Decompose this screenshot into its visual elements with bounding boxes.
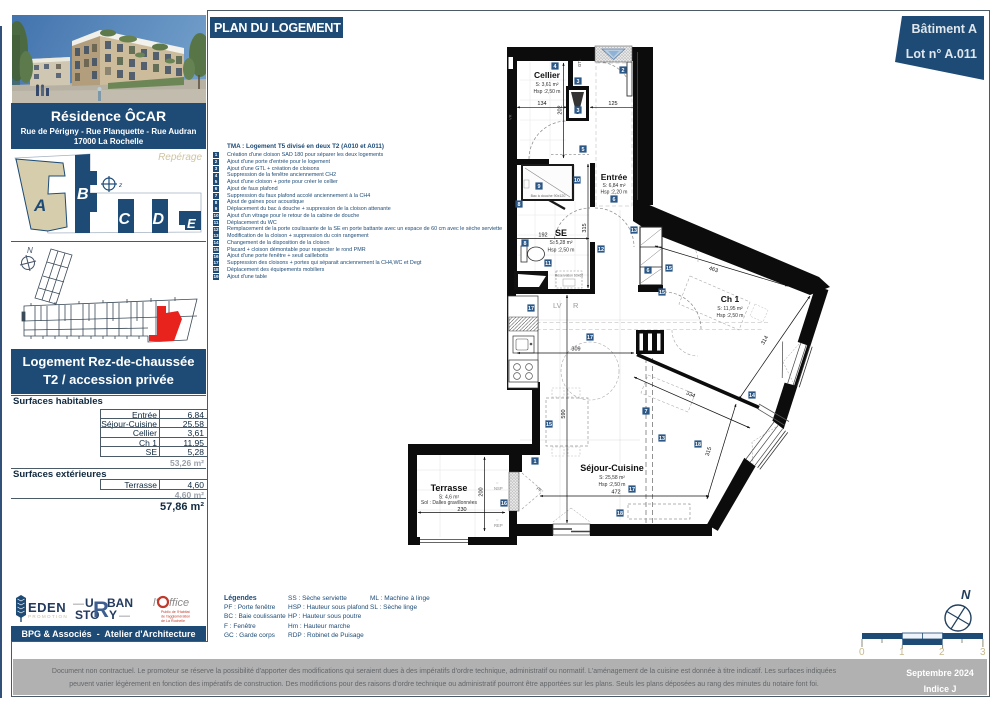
- svg-text:200: 200: [479, 487, 485, 496]
- svg-text:Séjour-Cuisine: Séjour-Cuisine: [580, 463, 644, 473]
- svg-text:14: 14: [749, 393, 755, 399]
- svg-text:230: 230: [457, 507, 466, 513]
- svg-text:Cellier: Cellier: [534, 70, 561, 80]
- svg-text:REP: REP: [494, 523, 503, 528]
- svg-text:9: 9: [538, 184, 541, 190]
- svg-text:Bac à douche 90x120: Bac à douche 90x120: [531, 194, 566, 198]
- svg-text:13: 13: [659, 436, 665, 442]
- svg-text:R: R: [573, 301, 579, 310]
- svg-text:134: 134: [537, 101, 546, 107]
- svg-text:5: 5: [582, 147, 585, 153]
- svg-text:472: 472: [611, 490, 620, 496]
- svg-text:15: 15: [659, 290, 665, 296]
- svg-text:315: 315: [582, 223, 588, 232]
- svg-text:17: 17: [629, 487, 635, 493]
- svg-text:Hsp :2,20 m: Hsp :2,20 m: [601, 190, 628, 196]
- svg-text:309: 309: [571, 347, 580, 353]
- svg-text:18: 18: [695, 442, 701, 448]
- svg-text:○: ○: [496, 480, 499, 485]
- svg-text:PF: PF: [535, 486, 543, 494]
- svg-text:590: 590: [561, 409, 567, 418]
- svg-text:125: 125: [608, 101, 617, 107]
- svg-text:○: ○: [496, 517, 499, 522]
- svg-text:Terrasse: Terrasse: [431, 483, 468, 493]
- svg-text:8: 8: [524, 241, 527, 247]
- svg-text:LV: LV: [553, 301, 562, 310]
- svg-text:8: 8: [518, 202, 521, 208]
- svg-text:3: 3: [577, 79, 580, 85]
- svg-text:S: 3,61 m²: S: 3,61 m²: [535, 82, 558, 88]
- svg-text:334: 334: [685, 390, 696, 399]
- svg-text:Sol : Dalles gravillonnées: Sol : Dalles gravillonnées: [421, 500, 478, 506]
- svg-text:6: 6: [647, 268, 650, 274]
- svg-text:17: 17: [528, 306, 534, 312]
- svg-text:13: 13: [631, 228, 637, 234]
- svg-text:15: 15: [546, 422, 552, 428]
- svg-text:6: 6: [613, 197, 616, 203]
- svg-text:11: 11: [545, 261, 551, 267]
- svg-text:202: 202: [558, 105, 564, 114]
- svg-text:S: 11,95 m²: S: 11,95 m²: [717, 306, 743, 312]
- svg-text:4: 4: [554, 64, 557, 70]
- svg-text:Hsp :2,50 m: Hsp :2,50 m: [717, 313, 744, 319]
- svg-text:Entrée: Entrée: [601, 172, 628, 182]
- svg-text:10: 10: [574, 178, 580, 184]
- svg-text:GTL: GTL: [577, 58, 582, 67]
- svg-text:Hsp :2,50 m: Hsp :2,50 m: [548, 248, 575, 254]
- svg-text:S: 6,84 m²: S: 6,84 m²: [602, 183, 625, 189]
- svg-text:192: 192: [538, 233, 547, 239]
- svg-text:18: 18: [617, 511, 623, 517]
- svg-text:15: 15: [666, 266, 672, 272]
- svg-text:2: 2: [622, 68, 625, 74]
- svg-text:17: 17: [587, 335, 593, 341]
- svg-text:16: 16: [501, 501, 507, 507]
- svg-text:12: 12: [598, 247, 604, 253]
- svg-text:7: 7: [645, 409, 648, 415]
- svg-text:Ch 1: Ch 1: [721, 294, 740, 304]
- svg-text:314: 314: [760, 335, 770, 346]
- svg-text:NSP: NSP: [494, 486, 503, 491]
- svg-text:315: 315: [705, 446, 714, 457]
- svg-text:Hsp :2,50 m: Hsp :2,50 m: [534, 89, 561, 95]
- svg-text:Hsp :2,50 m: Hsp :2,50 m: [599, 482, 626, 488]
- svg-text:3: 3: [577, 108, 580, 114]
- svg-text:Réservation 60x60: Réservation 60x60: [555, 274, 583, 278]
- svg-text:S: 5,28 m²: S: 5,28 m²: [549, 240, 572, 246]
- svg-text:S: 25,58 m²: S: 25,58 m²: [599, 475, 625, 481]
- svg-text:SE: SE: [555, 228, 567, 238]
- svg-text:1: 1: [534, 459, 537, 465]
- svg-text:463: 463: [708, 266, 719, 274]
- svg-text:VR: VR: [508, 114, 513, 120]
